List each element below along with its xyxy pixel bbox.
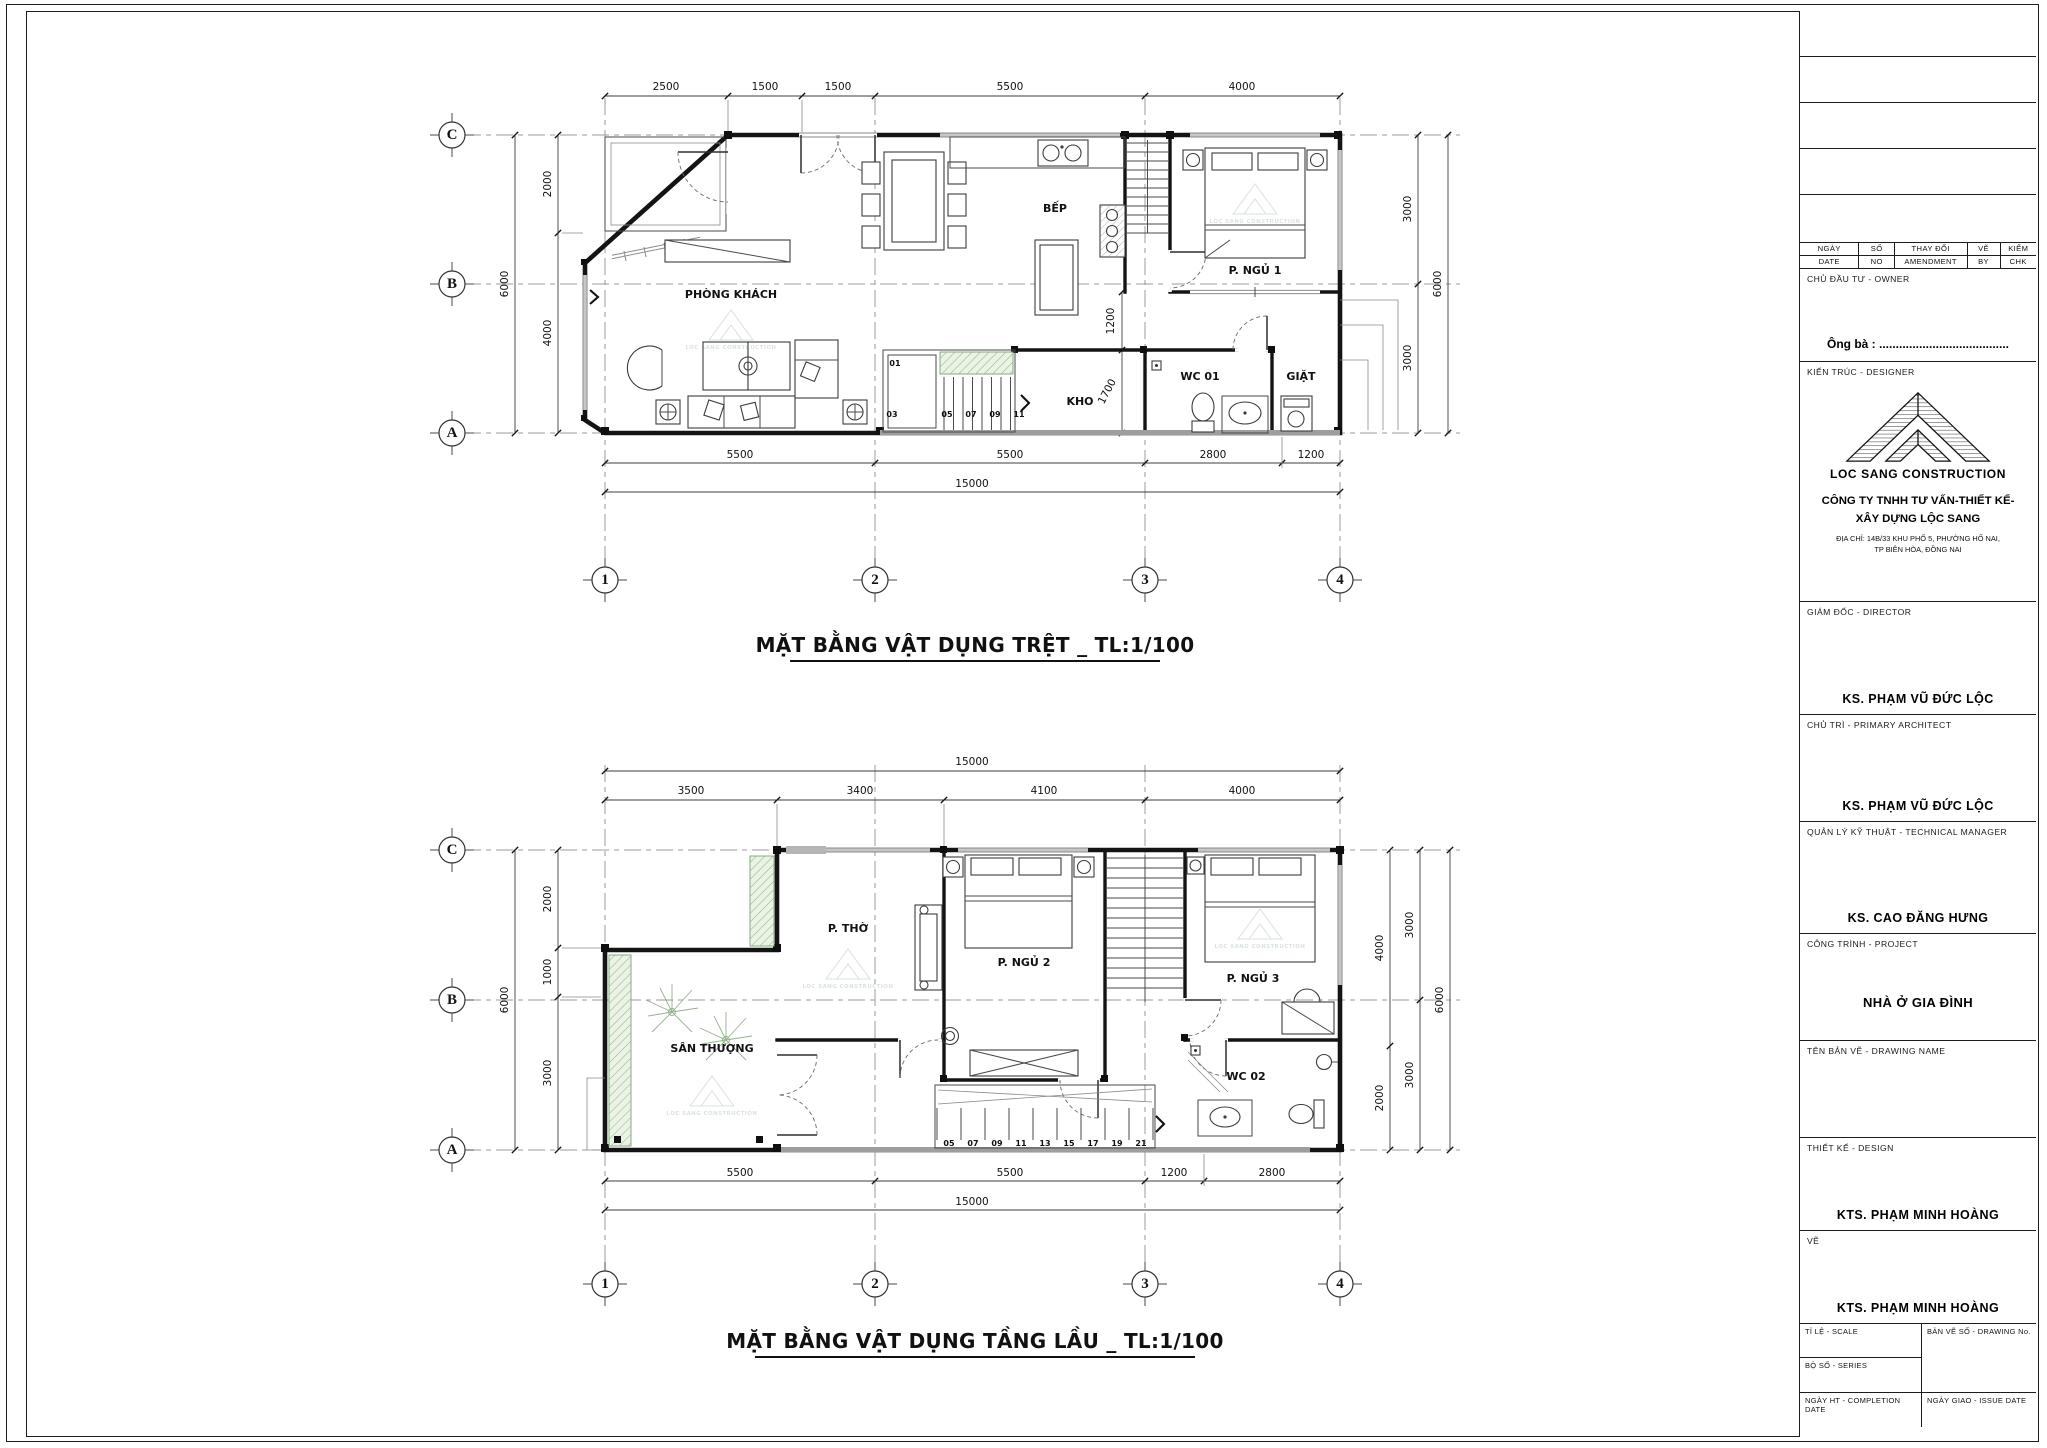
dim-label: 2800 — [1259, 1167, 1286, 1179]
dim-label: 5500 — [727, 449, 754, 461]
rev-col: KIỂM — [2001, 243, 2036, 255]
dim-label: 15000 — [955, 478, 988, 490]
room-label-altar: P. THỜ — [828, 922, 869, 935]
watermark-logo: LOC SANG CONSTRUCTION — [686, 310, 777, 351]
room-label-storage: KHO — [1066, 395, 1093, 408]
grid-number: 2 — [871, 572, 879, 588]
company-address-line1: ĐỊA CHỈ: 14B/33 KHU PHỐ 5, PHƯỜNG HỐ NAI… — [1800, 533, 2036, 544]
revision-row — [1800, 103, 2036, 149]
rev-col: NGÀY — [1800, 243, 1859, 255]
issue-date-cell: NGÀY GIAO - ISSUE DATE — [1922, 1393, 2036, 1427]
stair-number: 05 — [941, 410, 953, 419]
watermark-text: LOC SANG CONSTRUCTION — [803, 984, 894, 990]
dim-label: 3000 — [1402, 345, 1414, 372]
dim-label: 1200 — [1298, 449, 1325, 461]
room-label-bed3: P. NGỦ 3 — [1227, 971, 1280, 985]
sliding-door-leaf — [786, 846, 826, 854]
scale-series-date-grid: TỈ LỆ - SCALE BỘ SỐ - SERIES NGÀY HT - C… — [1800, 1324, 2036, 1427]
room-label-terrace: SÂN THƯỢNG — [670, 1042, 753, 1055]
grid-bubble-C: C — [430, 828, 474, 872]
plan1-gray-wall-strip — [880, 430, 1340, 436]
room-label-wc2: WC 02 — [1226, 1070, 1265, 1083]
grid-bubble-C: C — [430, 113, 474, 157]
revision-row — [1800, 11, 2036, 57]
revision-row — [1800, 149, 2036, 195]
rev-col: DATE — [1800, 256, 1859, 268]
room-label-living: PHÒNG KHÁCH — [685, 288, 777, 301]
drawing-sheet: 2500 1500 1500 5500 4000 5500 5500 2800 … — [0, 0, 2047, 1448]
stair-number: 09 — [989, 410, 1001, 419]
plan2-vertical-stair — [1107, 855, 1183, 1002]
room-label-bed2: P. NGỦ 2 — [998, 955, 1051, 969]
dim-label: 1200 — [1105, 308, 1117, 335]
plan1-kitchen-furniture — [862, 137, 1125, 315]
grid-letter: A — [447, 1142, 458, 1158]
rev-col: NO — [1859, 256, 1894, 268]
rev-col: THAY ĐỔI — [1895, 243, 1968, 255]
room-label-laundry: GIẶT — [1286, 369, 1316, 383]
plan1-title: MẶT BẰNG VẬT DỤNG TRỆT _ TL:1/100 — [756, 631, 1195, 657]
stair-number: 07 — [965, 410, 976, 419]
dim-label: 2000 — [542, 886, 554, 913]
dim-label: 6000 — [1432, 271, 1444, 298]
dim-label: 2000 — [1374, 1085, 1386, 1112]
designer-label: KIẾN TRÚC - DESIGNER — [1800, 362, 2036, 377]
drawn-by-section: VẼ KTS. PHẠM MINH HOÀNG — [1800, 1231, 2036, 1324]
plan1-bed1-furniture — [1183, 148, 1327, 258]
plan2-title: MẶT BẰNG VẬT DỤNG TẦNG LẦU _ TL:1/100 — [726, 1327, 1223, 1353]
dim-label: 6000 — [499, 271, 511, 298]
dim-label: 2000 — [542, 171, 554, 198]
rev-col: CHK — [2001, 256, 2036, 268]
dim-label: 1500 — [825, 81, 852, 93]
stair-number: 01 — [889, 359, 901, 368]
room-label-wc1: WC 01 — [1180, 370, 1219, 383]
stair-number: 15 — [1063, 1139, 1075, 1148]
grid-bubble-1: 1 — [583, 1262, 627, 1306]
grid-number: 2 — [871, 1276, 879, 1292]
dim-label: 2800 — [1200, 449, 1227, 461]
plan2-dimension-chains — [515, 771, 1450, 1210]
design-name: KTS. PHẠM MINH HOÀNG — [1800, 1208, 2036, 1230]
plan1-bay-chevron — [590, 290, 598, 304]
owner-label: CHỦ ĐẦU TƯ - OWNER — [1800, 269, 2036, 284]
grid-letter: C — [447, 842, 458, 858]
plan2-stair-flight: 05 07 09 11 13 15 17 19 21 — [935, 1085, 1164, 1148]
grid-number: 1 — [601, 1276, 609, 1292]
stair-number: 11 — [1013, 410, 1025, 419]
design-label: THIẾT KẾ - DESIGN — [1800, 1138, 2036, 1153]
stair-number: 03 — [886, 410, 897, 419]
planter-hatch — [940, 352, 1013, 374]
drawn-by-label: VẼ — [1800, 1231, 2036, 1246]
dim-label: 3000 — [1404, 1062, 1416, 1089]
stair-number: 17 — [1087, 1139, 1098, 1148]
dim-label: 5500 — [997, 1167, 1024, 1179]
grid-number: 4 — [1336, 1276, 1344, 1292]
title-block: NGÀY SỐ THAY ĐỔI VẼ KIỂM DATE NO AMENDME… — [1799, 11, 2036, 1437]
design-section: THIẾT KẾ - DESIGN KTS. PHẠM MINH HOÀNG — [1800, 1138, 2036, 1231]
scale-cell: TỈ LỆ - SCALE — [1800, 1324, 1922, 1358]
primary-architect-name: KS. PHẠM VŨ ĐỨC LỘC — [1800, 799, 2036, 821]
technical-manager-label: QUẢN LÝ KỸ THUẬT - TECHNICAL MANAGER — [1800, 822, 2036, 837]
plan1-right-exterior — [1340, 300, 1398, 430]
drawing-number-cell: BẢN VẼ SỐ - DRAWING No. — [1922, 1324, 2036, 1393]
plan1-vertical-stair — [1127, 140, 1168, 233]
dim-label: 6000 — [499, 987, 511, 1014]
grid-bubble-B: B — [430, 978, 474, 1022]
grid-number: 3 — [1141, 572, 1149, 588]
director-section: GIÁM ĐỐC - DIRECTOR KS. PHẠM VŨ ĐỨC LỘC — [1800, 602, 2036, 715]
designer-section: KIẾN TRÚC - DESIGNER LOC SANG CONSTRUCTI… — [1800, 362, 2036, 602]
dim-label: 3500 — [678, 785, 705, 797]
grid-bubble-2: 2 — [853, 558, 897, 602]
plan2-altar-furniture — [915, 905, 942, 990]
watermark-logo: LOC SANG CONSTRUCTION — [803, 949, 894, 990]
grid-bubble-4: 4 — [1318, 558, 1362, 602]
dim-label: 4000 — [542, 320, 554, 347]
grid-number: 3 — [1141, 1276, 1149, 1292]
stair-number: 21 — [1135, 1139, 1147, 1148]
revision-row — [1800, 57, 2036, 103]
dim-label: 4000 — [1229, 785, 1256, 797]
dim-label: 1000 — [542, 959, 554, 986]
stair-number: 13 — [1039, 1139, 1050, 1148]
dim-label: 1200 — [1161, 1167, 1188, 1179]
revision-table — [1800, 11, 2036, 243]
project-name: NHÀ Ở GIA ĐÌNH — [1800, 995, 2036, 1018]
grid-number: 1 — [601, 572, 609, 588]
completion-date-cell: NGÀY HT - COMPLETION DATE — [1800, 1393, 1922, 1427]
project-section: CÔNG TRÌNH - PROJECT NHÀ Ở GIA ĐÌNH — [1800, 934, 2036, 1041]
rev-col: VẼ — [1968, 243, 2001, 255]
revision-header: NGÀY SỐ THAY ĐỔI VẼ KIỂM DATE NO AMENDME… — [1800, 243, 2036, 269]
drawing-name-section: TÊN BẢN VẼ - DRAWING NAME — [1800, 1041, 2036, 1138]
stair-number: 05 — [943, 1139, 955, 1148]
stair-number: 11 — [1015, 1139, 1027, 1148]
dim-label: 1700 — [1096, 377, 1119, 406]
watermark-text: LOC SANG CONSTRUCTION — [686, 345, 777, 351]
floor-plan-upper: 15000 3500 3400 4100 4000 5500 5500 1200… — [430, 756, 1460, 1357]
drawing-name-label: TÊN BẢN VẼ - DRAWING NAME — [1800, 1041, 2036, 1056]
grid-letter: A — [447, 425, 458, 441]
rev-col: AMENDMENT — [1895, 256, 1968, 268]
stair-number: 09 — [991, 1139, 1003, 1148]
dim-label: 1500 — [752, 81, 779, 93]
dim-label: 6000 — [1434, 987, 1446, 1014]
floor-plan-ground: 2500 1500 1500 5500 4000 5500 5500 2800 … — [430, 81, 1460, 661]
logo-text: LOC SANG CONSTRUCTION — [1800, 467, 2036, 481]
primary-architect-label: CHỦ TRÌ - PRIMARY ARCHITECT — [1800, 715, 2036, 730]
owner-value: Ông bà : ...............................… — [1800, 337, 2036, 361]
rev-col: SỐ — [1859, 243, 1894, 255]
plan2-grid-centerlines — [432, 765, 1460, 1266]
dim-label: 15000 — [955, 756, 988, 768]
dim-label: 3000 — [1404, 912, 1416, 939]
company-logo-icon — [1833, 387, 2003, 465]
stair-number: 07 — [967, 1139, 978, 1148]
project-label: CÔNG TRÌNH - PROJECT — [1800, 934, 2036, 949]
grid-letter: B — [447, 992, 457, 1008]
series-cell: BỘ SỐ - SERIES — [1800, 1358, 1922, 1393]
plan2-terrace — [609, 856, 774, 1146]
dim-label: 5500 — [997, 81, 1024, 93]
palm-plant — [646, 984, 698, 1032]
rev-col: BY — [1968, 256, 2001, 268]
grid-letter: B — [447, 276, 457, 292]
stair-number: 19 — [1111, 1139, 1123, 1148]
watermark-logo: LOC SANG CONSTRUCTION — [667, 1076, 758, 1117]
director-name: KS. PHẠM VŨ ĐỨC LỘC — [1800, 692, 2036, 714]
technical-manager-section: QUẢN LÝ KỸ THUẬT - TECHNICAL MANAGER KS.… — [1800, 822, 2036, 934]
dim-label: 15000 — [955, 1196, 988, 1208]
watermark-text: LOC SANG CONSTRUCTION — [1210, 219, 1301, 225]
grid-bubble-B: B — [430, 262, 474, 306]
drawn-by-name: KTS. PHẠM MINH HOÀNG — [1800, 1301, 2036, 1323]
plan2-wc-fixtures — [1188, 1046, 1338, 1136]
room-label-bed1: P. NGỦ 1 — [1229, 263, 1282, 277]
grid-number: 4 — [1336, 572, 1344, 588]
director-label: GIÁM ĐỐC - DIRECTOR — [1800, 602, 2036, 617]
plan1-stair-block: 01 03 05 07 09 11 — [883, 350, 1029, 432]
watermark-text: LOC SANG CONSTRUCTION — [1215, 944, 1306, 950]
revision-row — [1800, 195, 2036, 241]
dim-label: 4000 — [1229, 81, 1256, 93]
grid-bubble-A: A — [430, 411, 474, 455]
grid-bubble-A: A — [430, 1128, 474, 1172]
dim-label: 3000 — [1402, 196, 1414, 223]
dim-label: 4000 — [1374, 935, 1386, 962]
grid-bubble-1: 1 — [583, 558, 627, 602]
company-name-line2: XÂY DỰNG LỘC SANG — [1800, 511, 2036, 529]
company-name-line1: CÔNG TY TNHH TƯ VẤN-THIẾT KẾ- — [1800, 493, 2036, 511]
dim-label: 5500 — [727, 1167, 754, 1179]
room-label-kitchen: BẾP — [1043, 200, 1067, 215]
owner-section: CHỦ ĐẦU TƯ - OWNER Ông bà : ............… — [1800, 269, 2036, 362]
dim-label: 3000 — [542, 1060, 554, 1087]
plan1-living-furniture — [627, 240, 867, 428]
floor-plans-canvas: 2500 1500 1500 5500 4000 5500 5500 2800 … — [0, 0, 2047, 1448]
grid-bubble-2: 2 — [853, 1262, 897, 1306]
grid-bubble-4: 4 — [1318, 1262, 1362, 1306]
company-address-line2: TP BIÊN HÒA, ĐỒNG NAI — [1800, 544, 2036, 555]
watermark-text: LOC SANG CONSTRUCTION — [667, 1111, 758, 1117]
primary-architect-section: CHỦ TRÌ - PRIMARY ARCHITECT KS. PHẠM VŨ … — [1800, 715, 2036, 822]
grid-letter: C — [447, 127, 458, 143]
technical-manager-name: KS. CAO ĐĂNG HƯNG — [1800, 911, 2036, 933]
dim-label: 4100 — [1031, 785, 1058, 797]
dim-label: 5500 — [997, 449, 1024, 461]
dim-label: 2500 — [653, 81, 680, 93]
grid-bubble-3: 3 — [1123, 1262, 1167, 1306]
dim-label: 3400 — [847, 785, 874, 797]
grid-bubble-3: 3 — [1123, 558, 1167, 602]
